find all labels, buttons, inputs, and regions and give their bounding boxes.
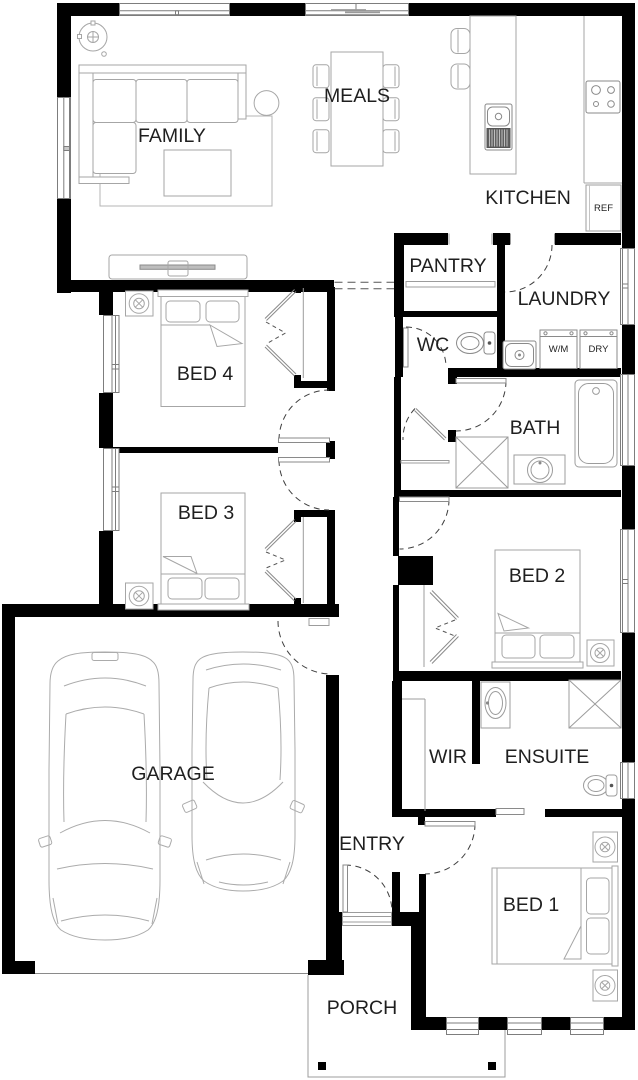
- svg-text:WC: WC: [417, 334, 450, 356]
- svg-text:BATH: BATH: [510, 417, 561, 439]
- svg-text:BED 2: BED 2: [509, 565, 565, 587]
- svg-text:BED 1: BED 1: [503, 894, 559, 916]
- svg-text:DRY: DRY: [589, 344, 610, 355]
- svg-text:GARAGE: GARAGE: [131, 763, 214, 785]
- svg-text:BED 4: BED 4: [177, 363, 234, 385]
- svg-text:FAMILY: FAMILY: [138, 125, 206, 147]
- svg-text:ENTRY: ENTRY: [339, 833, 405, 855]
- svg-text:BED 3: BED 3: [178, 502, 234, 524]
- svg-text:PANTRY: PANTRY: [409, 255, 486, 277]
- svg-text:PORCH: PORCH: [327, 997, 397, 1019]
- svg-text:REF: REF: [594, 203, 613, 214]
- svg-text:KITCHEN: KITCHEN: [485, 187, 571, 209]
- svg-text:MEALS: MEALS: [324, 85, 390, 107]
- svg-text:ENSUITE: ENSUITE: [505, 746, 590, 768]
- svg-text:WIR: WIR: [429, 746, 467, 768]
- svg-text:W/M: W/M: [549, 344, 569, 355]
- svg-text:LAUNDRY: LAUNDRY: [518, 288, 611, 310]
